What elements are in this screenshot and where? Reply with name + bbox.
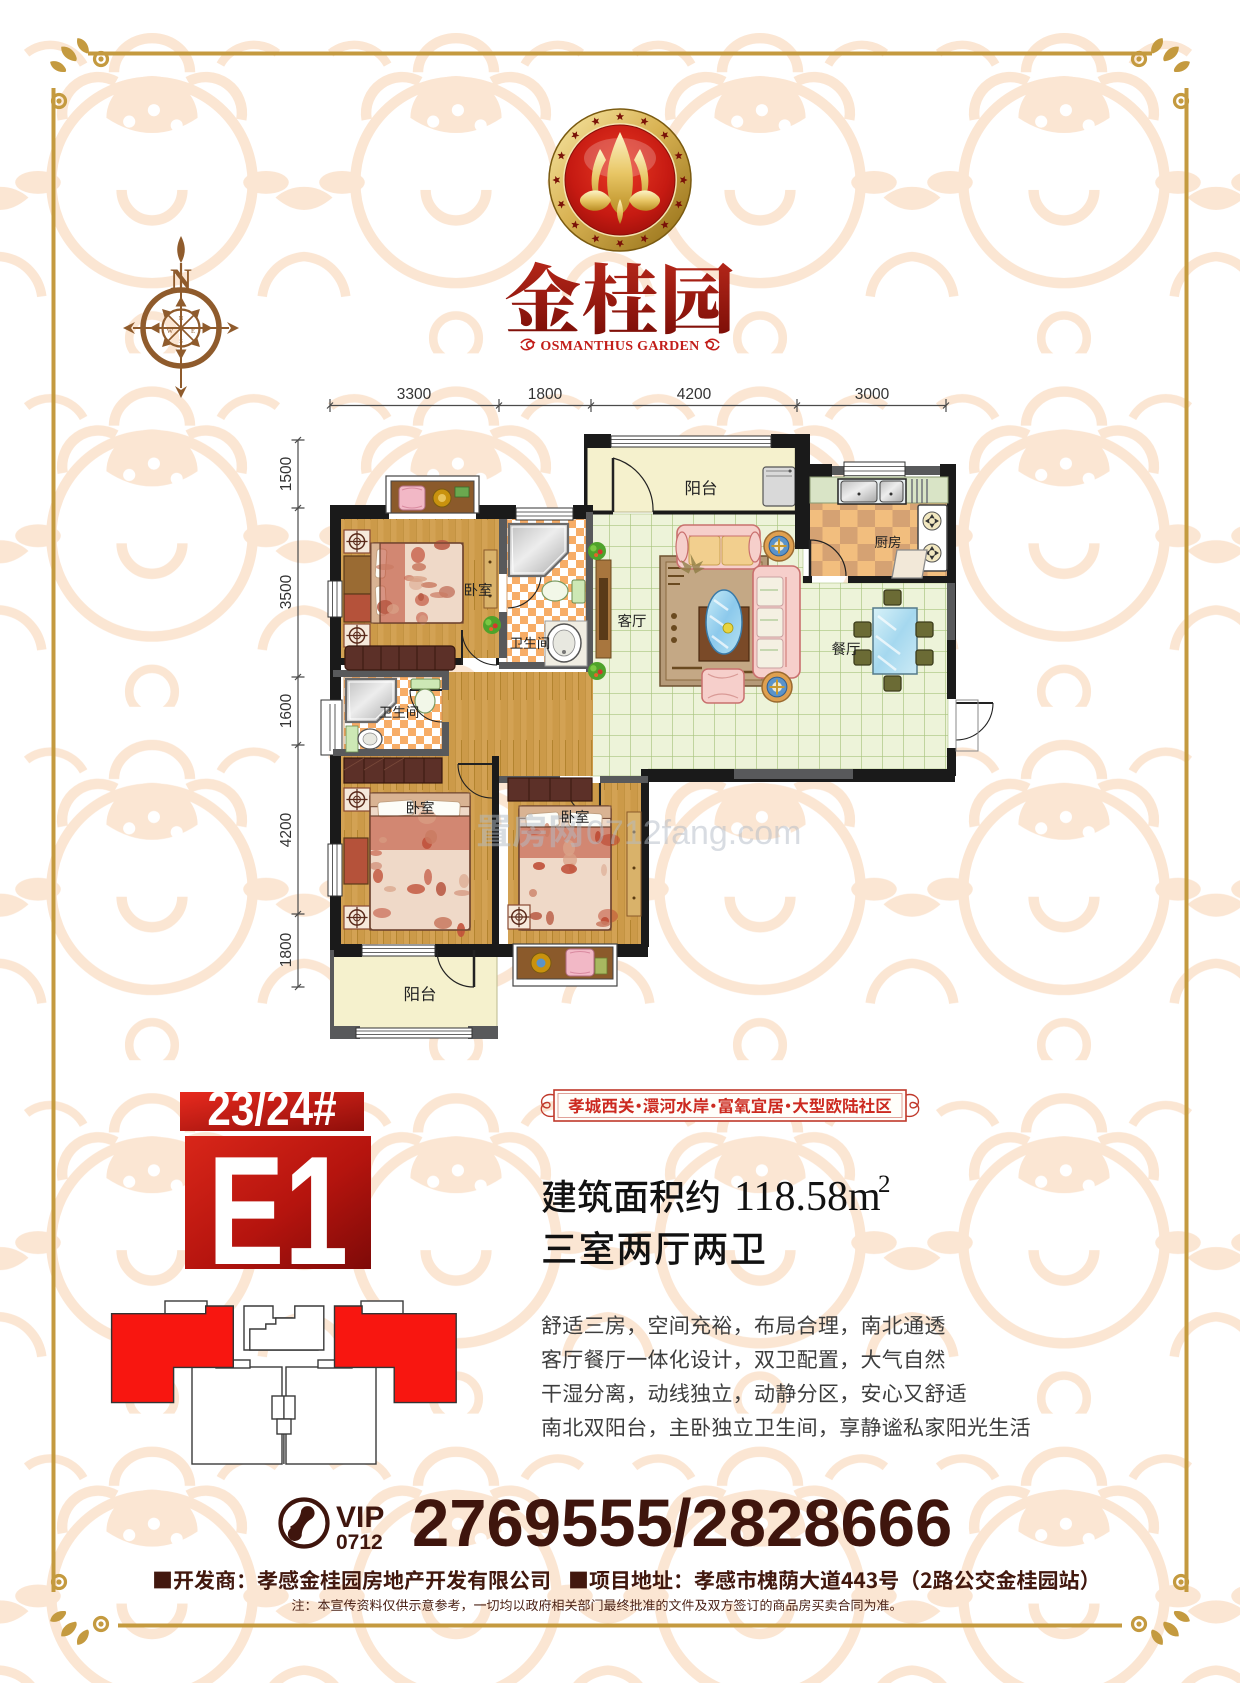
svg-text:0712: 0712	[336, 1531, 383, 1554]
svg-text:2769555/2828666: 2769555/2828666	[412, 1486, 952, 1561]
svg-text:1600: 1600	[278, 693, 295, 728]
svg-text:3000: 3000	[855, 386, 890, 403]
svg-text:E: E	[191, 328, 195, 335]
svg-text:W: W	[167, 328, 174, 335]
svg-text:118.58m: 118.58m	[734, 1174, 881, 1220]
svg-text:4200: 4200	[278, 812, 295, 847]
svg-text:N: N	[170, 263, 192, 296]
svg-text:0712fang.com: 0712fang.com	[586, 814, 802, 852]
svg-text:VIP: VIP	[336, 1501, 384, 1534]
svg-text:3300: 3300	[397, 386, 432, 403]
svg-text:1800: 1800	[278, 932, 295, 967]
svg-text:1500: 1500	[278, 456, 295, 491]
svg-text:E1: E1	[208, 1124, 348, 1297]
svg-text:4200: 4200	[677, 386, 712, 403]
svg-text:OSMANTHUS GARDEN: OSMANTHUS GARDEN	[540, 339, 699, 354]
svg-text:3500: 3500	[278, 574, 295, 609]
svg-text:S: S	[179, 338, 183, 345]
svg-text:N: N	[179, 315, 184, 322]
svg-text:1800: 1800	[528, 386, 563, 403]
svg-text:2: 2	[878, 1171, 891, 1198]
